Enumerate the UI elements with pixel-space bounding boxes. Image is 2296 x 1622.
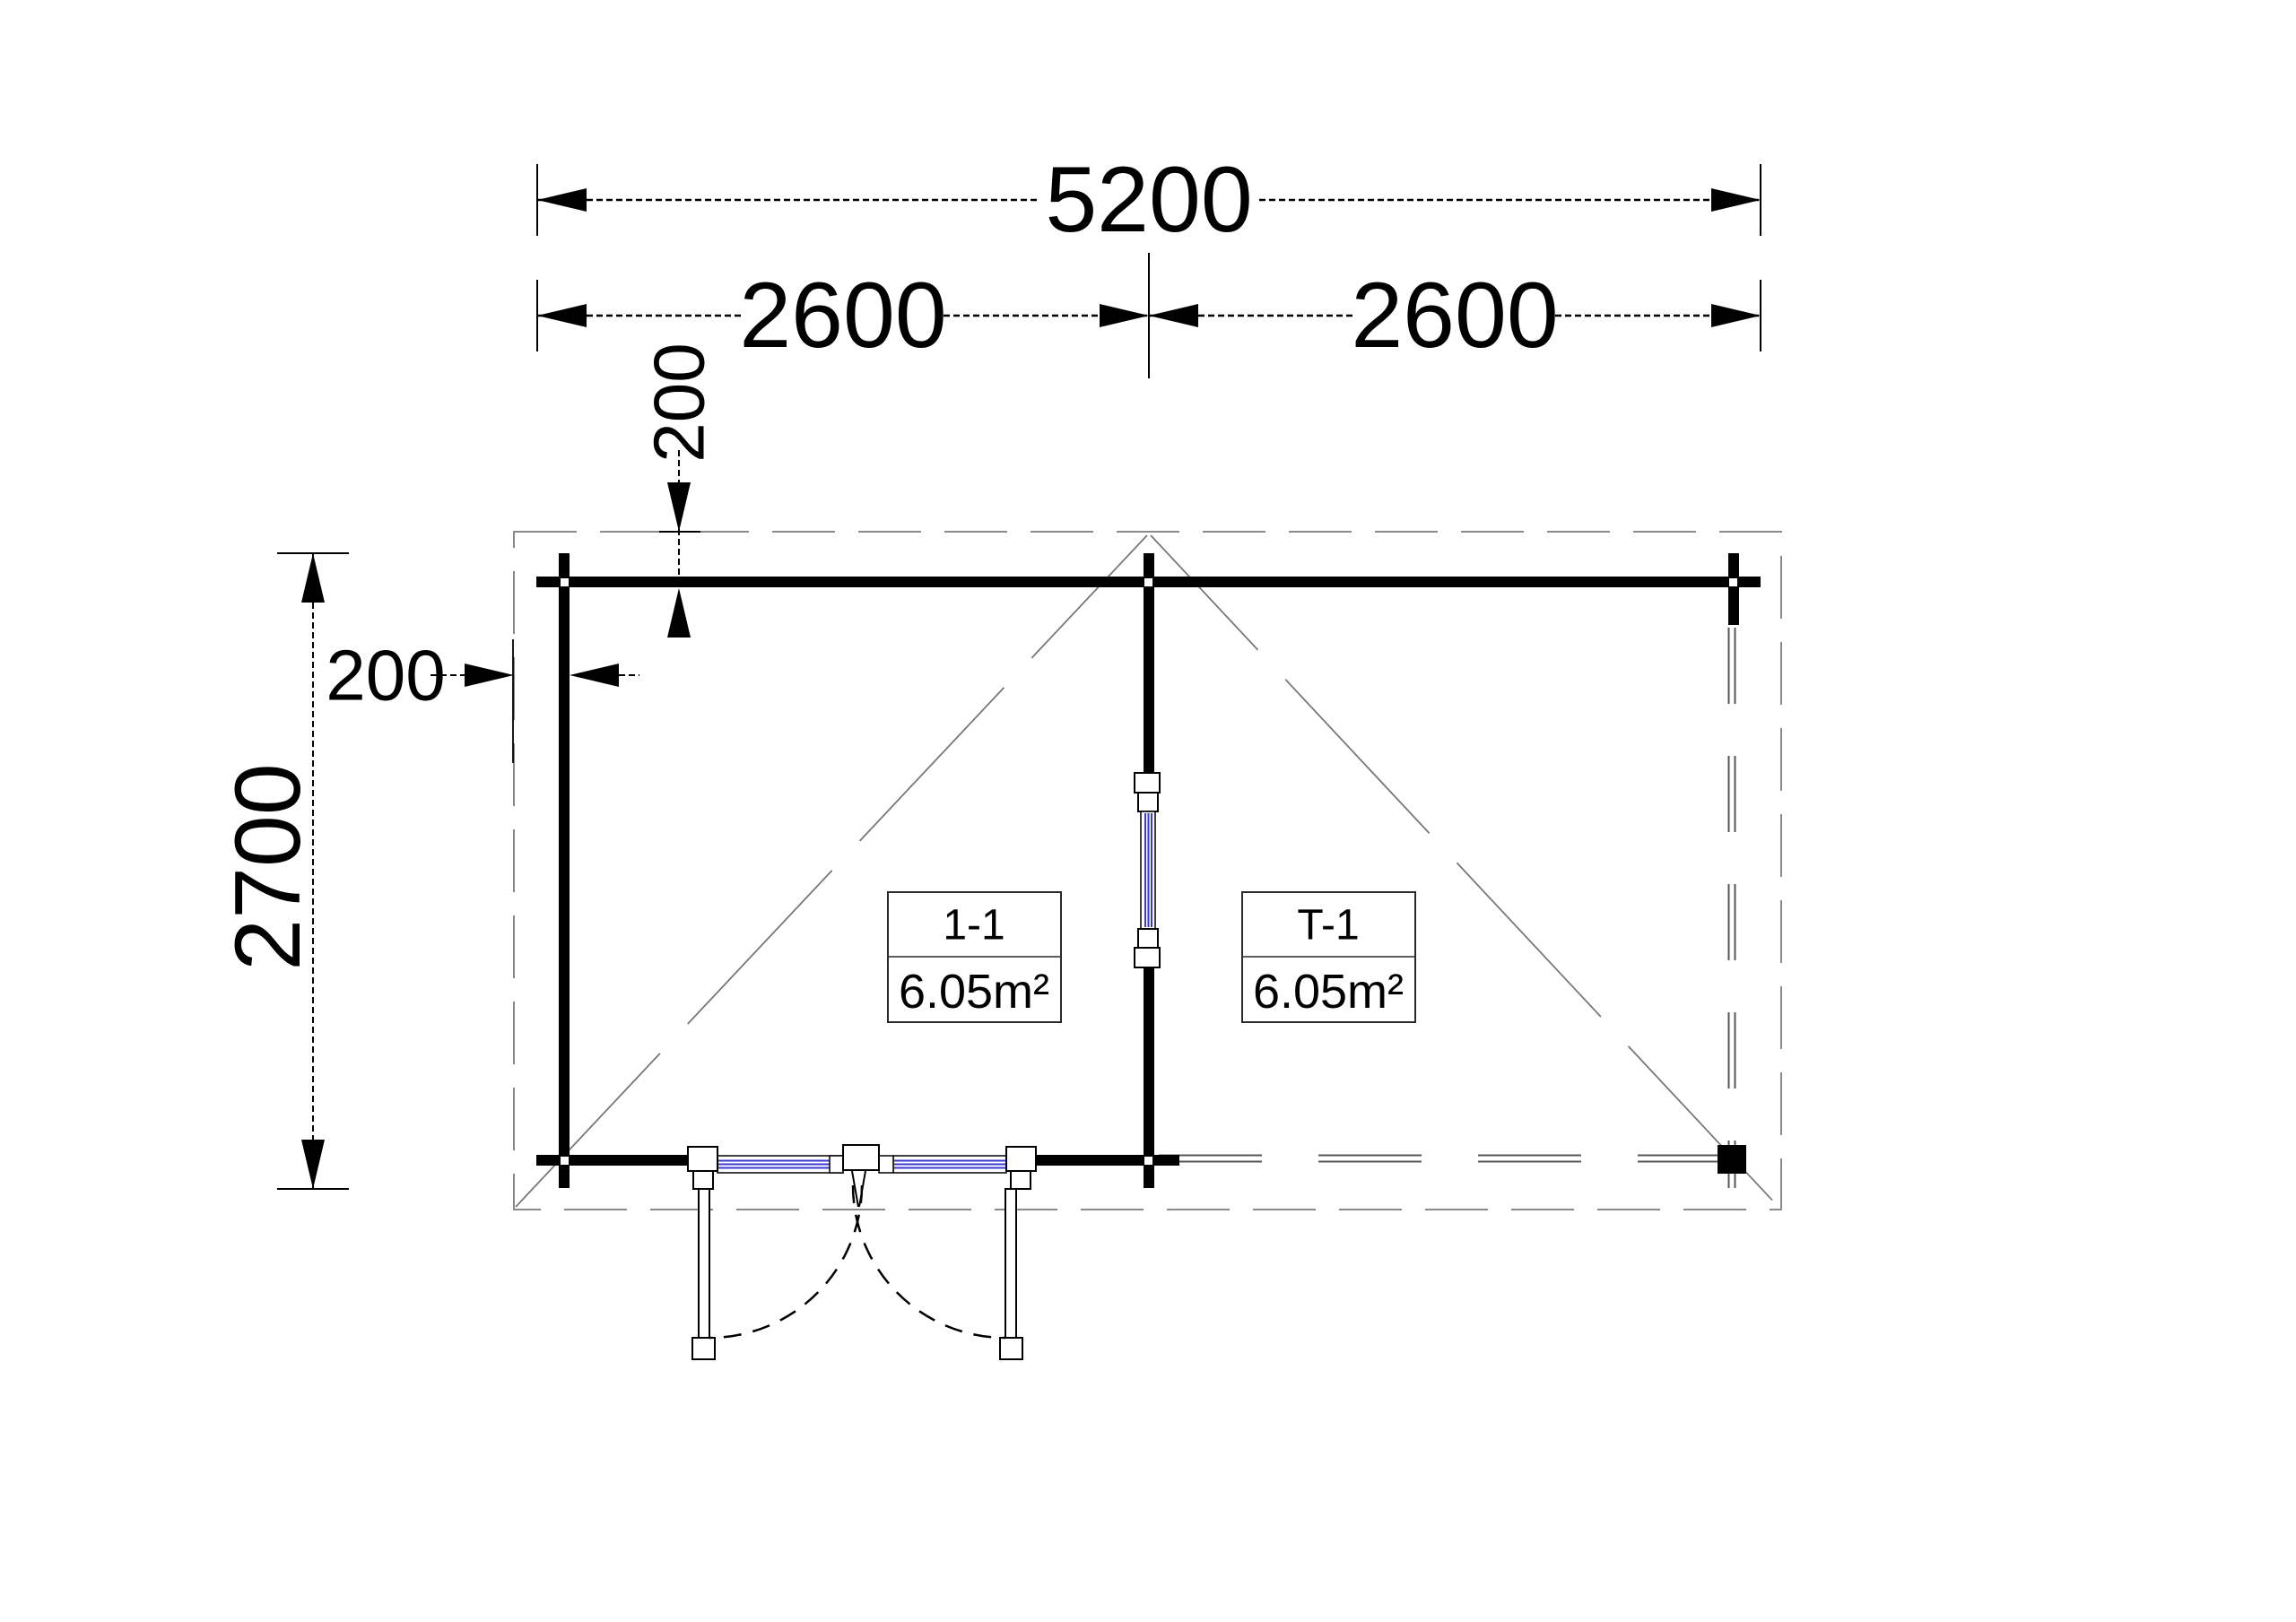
dimension-right-bay-label: 2600 — [1351, 264, 1558, 368]
dimension-overall-width: 5200 — [537, 148, 1761, 252]
dimension-eave-offset-top: 200 — [639, 343, 719, 638]
corner-joint-top-right — [1729, 578, 1737, 586]
arrowhead-left — [537, 304, 587, 327]
dimension-overall-width-label: 5200 — [1045, 148, 1252, 252]
door-left-jamb-block — [693, 1171, 713, 1189]
door-right-jamb-block — [1011, 1171, 1031, 1189]
room-1-label-box: 1-1 6.05m² — [888, 892, 1061, 1022]
window-frame-block-top-outer — [1135, 773, 1160, 793]
dimension-overall-depth-label: 2700 — [216, 763, 320, 970]
middle-wall-window — [1135, 773, 1160, 967]
arrowhead-middle-right — [1149, 304, 1198, 327]
terrace-label-box: T-1 6.05m² — [1242, 892, 1415, 1022]
arrowhead-right — [1711, 188, 1761, 212]
arrowhead-middle-left — [1100, 304, 1149, 327]
double-door — [688, 1145, 1036, 1359]
door-left-jamb — [688, 1147, 717, 1171]
door-center-mullion — [843, 1145, 879, 1170]
door-left-leaf-open — [699, 1189, 709, 1338]
corner-joint-top-left — [561, 578, 569, 586]
window-frame-block-bottom-outer — [1135, 948, 1160, 967]
door-mullion-side-block — [879, 1156, 893, 1173]
arrowhead-right — [465, 664, 514, 687]
dimension-left-bay-label: 2600 — [739, 264, 946, 368]
left-roof-slope-line — [516, 535, 1147, 1207]
door-right-leaf-end-block — [1000, 1338, 1022, 1359]
door-right-jamb — [1006, 1147, 1036, 1171]
arrowhead-down — [301, 1140, 325, 1189]
arrowhead-left — [537, 188, 587, 212]
door-left-swing-arc — [709, 1185, 862, 1338]
dimension-bay-widths: 2600 2600 — [537, 253, 1761, 378]
corner-joint-top-middle — [1144, 578, 1152, 586]
door-right-leaf-open — [1005, 1189, 1016, 1338]
corner-joint-bottom-left — [561, 1157, 569, 1165]
terrace-name: T-1 — [1297, 902, 1359, 950]
door-left-leaf-end-block — [692, 1338, 715, 1359]
door-right-swing-arc — [853, 1185, 1005, 1338]
arrowhead-up — [301, 553, 325, 603]
left-wall — [559, 553, 570, 1188]
right-corner-log-stub — [1728, 553, 1739, 625]
terrace-area: 6.05m² — [1253, 965, 1404, 1019]
door-mullion-side-block — [830, 1156, 843, 1173]
arrowhead-down — [667, 482, 691, 532]
middle-wall-lower — [1144, 966, 1154, 1188]
floor-plan-canvas: 5200 2600 2600 200 200 2700 — [0, 0, 2296, 1622]
dimension-eave-offset-top-label: 200 — [639, 343, 719, 462]
arrowhead-up — [667, 588, 691, 638]
dimension-eave-offset-left-label: 200 — [326, 636, 445, 716]
dimension-eave-offset-left: 200 — [326, 636, 639, 764]
right-roof-slope-line — [1151, 535, 1779, 1207]
arrowhead-right — [1711, 304, 1761, 327]
window-frame-block-bottom-inner — [1138, 929, 1158, 948]
room-1-name: 1-1 — [943, 902, 1004, 950]
terrace-corner-post — [1718, 1145, 1746, 1174]
corner-joint-bottom-middle — [1144, 1157, 1152, 1165]
arrowhead-left — [570, 664, 619, 687]
floor-plan-drawing: 5200 2600 2600 200 200 2700 — [0, 0, 2296, 1622]
room-1-area: 6.05m² — [899, 965, 1049, 1019]
window-frame-block-top-inner — [1138, 793, 1158, 811]
